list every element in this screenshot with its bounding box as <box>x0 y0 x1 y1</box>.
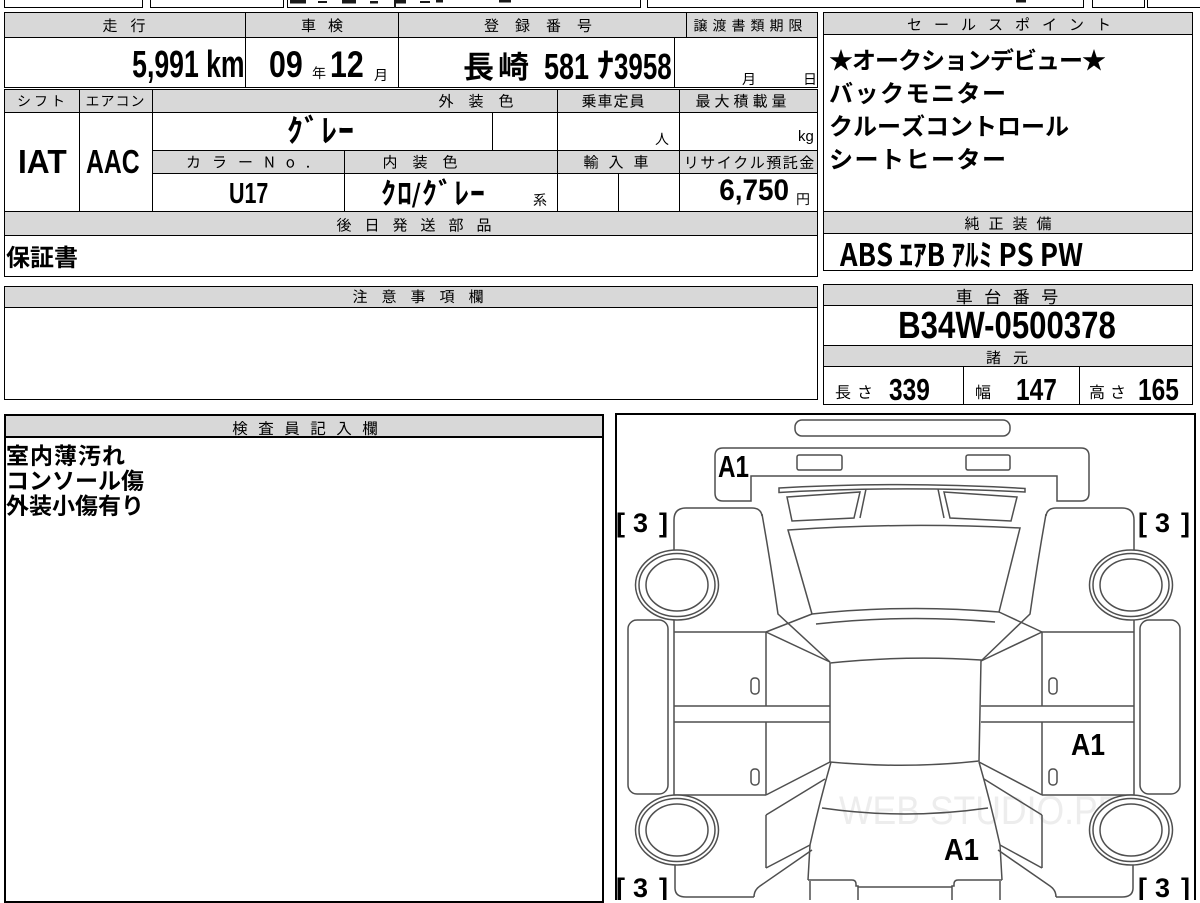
svg-text:A1: A1 <box>944 832 979 867</box>
svg-text:[3]: [3] <box>616 873 668 900</box>
svg-text:A1: A1 <box>1071 727 1105 762</box>
svg-text:[3]: [3] <box>1138 873 1190 900</box>
svg-text:[3]: [3] <box>616 508 668 538</box>
svg-text:[3]: [3] <box>1138 508 1190 538</box>
svg-text:A1: A1 <box>718 449 749 484</box>
